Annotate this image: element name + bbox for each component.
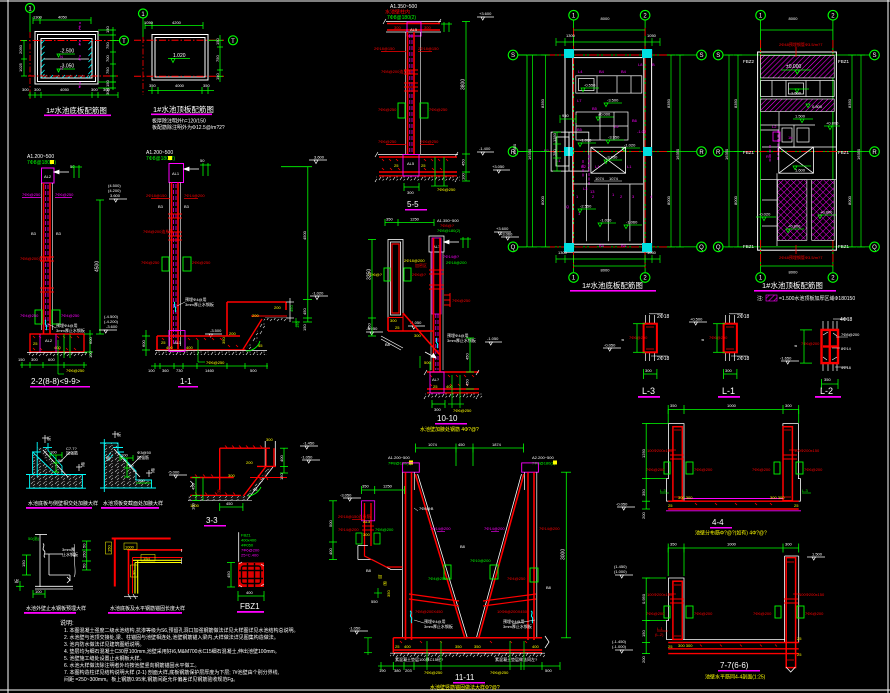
svg-text:1000: 1000 bbox=[125, 545, 135, 550]
svg-text:2Φ6@250: 2Φ6@250 bbox=[192, 260, 211, 265]
svg-text:B8: B8 bbox=[546, 585, 552, 590]
svg-text:-3.050: -3.050 bbox=[340, 493, 352, 498]
svg-text:300: 300 bbox=[266, 437, 273, 442]
svg-text:25: 25 bbox=[433, 384, 438, 389]
svg-text:25: 25 bbox=[794, 503, 799, 508]
svg-text:7Φ6@250: 7Φ6@250 bbox=[141, 260, 160, 265]
svg-text:L-3: L-3 bbox=[802, 488, 809, 493]
svg-text:400: 400 bbox=[166, 345, 173, 350]
svg-text:15d: 15d bbox=[143, 556, 150, 561]
svg-text:N: N bbox=[60, 66, 63, 71]
svg-text:5. 池壁施工缝处设置止水钢板大样。: 5. 池壁施工缝处设置止水钢板大样。 bbox=[64, 655, 145, 662]
svg-text:7Φ14@200: 7Φ14@200 bbox=[539, 526, 560, 531]
svg-text:150: 150 bbox=[295, 321, 300, 328]
svg-text:1-1: 1-1 bbox=[180, 377, 192, 386]
svg-text:1.500: 1.500 bbox=[795, 114, 806, 119]
svg-text:2Φ18@150: 2Φ18@150 bbox=[418, 46, 439, 51]
svg-text:R: R bbox=[716, 150, 721, 156]
svg-text:150: 150 bbox=[215, 73, 220, 80]
svg-text:B3: B3 bbox=[158, 204, 164, 209]
svg-text:700: 700 bbox=[105, 55, 110, 62]
svg-text:50: 50 bbox=[70, 164, 75, 169]
svg-text:壁: 壁 bbox=[81, 461, 85, 467]
svg-text:7Φ6@250: 7Φ6@250 bbox=[55, 192, 74, 197]
svg-text:板: 板 bbox=[13, 579, 19, 583]
svg-text:4500: 4500 bbox=[95, 261, 101, 272]
svg-text:L-1: L-1 bbox=[657, 626, 664, 631]
svg-text:(1.000): (1.000) bbox=[614, 569, 627, 574]
svg-text:450: 450 bbox=[461, 159, 466, 166]
svg-text:350: 350 bbox=[670, 542, 677, 547]
svg-text:100: 100 bbox=[35, 589, 42, 594]
svg-text:Q: Q bbox=[699, 245, 704, 251]
svg-text:7Φ8@200: 7Φ8@200 bbox=[841, 332, 860, 337]
svg-text:2Φ6@250: 2Φ6@250 bbox=[420, 139, 439, 144]
svg-text:+3.050: +3.050 bbox=[492, 164, 505, 169]
svg-text:750: 750 bbox=[552, 149, 557, 156]
svg-text:1250: 1250 bbox=[383, 484, 393, 489]
svg-text:7Φ6@250: 7Φ6@250 bbox=[378, 107, 397, 112]
svg-text:7-7(6-6): 7-7(6-6) bbox=[720, 661, 749, 670]
svg-text:7Φ6@250: 7Φ6@250 bbox=[490, 670, 509, 675]
svg-text:1050: 1050 bbox=[647, 250, 657, 255]
svg-text:7Φ8@180(2): 7Φ8@180(2) bbox=[387, 15, 416, 21]
svg-text:3.600: 3.600 bbox=[314, 155, 325, 160]
svg-text:8350: 8350 bbox=[540, 98, 545, 108]
svg-text:360: 360 bbox=[162, 368, 169, 373]
svg-text:壁: 壁 bbox=[106, 455, 110, 461]
svg-text:2Φ18@200: 2Φ18@200 bbox=[446, 260, 467, 265]
svg-text:T: T bbox=[231, 39, 235, 45]
svg-text:板配筋除注明外为Φ12.5@/m?2?: 板配筋除注明外为Φ12.5@/m?2? bbox=[152, 124, 225, 131]
svg-text:AL2: AL2 bbox=[44, 174, 52, 179]
svg-text:450: 450 bbox=[367, 323, 372, 330]
svg-text:8000: 8000 bbox=[733, 195, 738, 205]
svg-text:密: 密 bbox=[383, 580, 387, 586]
svg-text:A2.200~500: A2.200~500 bbox=[532, 455, 554, 460]
svg-text:1300: 1300 bbox=[558, 250, 568, 255]
svg-text:加: 加 bbox=[378, 573, 382, 579]
svg-text:+3.600: +3.600 bbox=[496, 226, 509, 231]
svg-text:L-1: L-1 bbox=[722, 386, 735, 396]
svg-text:450: 450 bbox=[226, 571, 231, 578]
svg-text:FBZ1: FBZ1 bbox=[743, 244, 754, 249]
svg-text:7Φ6@200: 7Φ6@200 bbox=[694, 611, 713, 616]
svg-text:45: 45 bbox=[258, 343, 263, 348]
svg-text:2Φ18@150连系筋: 2Φ18@150连系筋 bbox=[338, 513, 371, 519]
svg-text:7Φ6@200: 7Φ6@200 bbox=[629, 335, 648, 340]
svg-text:壁: 壁 bbox=[151, 467, 155, 473]
svg-text:600: 600 bbox=[88, 337, 93, 344]
svg-text:7Φ6@250: 7Φ6@250 bbox=[453, 408, 472, 413]
svg-text:45: 45 bbox=[253, 487, 258, 492]
svg-text:7Φ6@200: 7Φ6@200 bbox=[753, 611, 772, 616]
svg-text:400: 400 bbox=[328, 548, 333, 555]
svg-text:1874: 1874 bbox=[492, 442, 502, 447]
svg-text:3mm厚止水钢板: 3mm厚止水钢板 bbox=[185, 301, 214, 307]
svg-text:300: 300 bbox=[394, 25, 401, 30]
svg-text:200: 200 bbox=[246, 460, 253, 465]
svg-text:200: 200 bbox=[641, 656, 646, 663]
svg-text:200: 200 bbox=[229, 331, 236, 336]
svg-text:池壁水平筋同4-4剖面(1:25): 池壁水平筋同4-4剖面(1:25) bbox=[705, 674, 766, 681]
svg-text:300: 300 bbox=[22, 87, 29, 92]
svg-text:2Φ18: 2Φ18 bbox=[657, 314, 670, 320]
svg-text:300: 300 bbox=[785, 542, 792, 547]
svg-text:4Φ18: 4Φ18 bbox=[840, 317, 853, 323]
svg-text:11-11: 11-11 bbox=[455, 673, 475, 682]
svg-text:25: 25 bbox=[33, 341, 38, 346]
svg-text:4200: 4200 bbox=[172, 20, 182, 25]
svg-text:300: 300 bbox=[34, 87, 41, 92]
svg-text:300 300: 300 300 bbox=[678, 643, 693, 648]
svg-text:450: 450 bbox=[226, 501, 233, 506]
svg-text:1.020: 1.020 bbox=[173, 53, 186, 59]
svg-text:1074: 1074 bbox=[428, 442, 438, 447]
svg-text:B4: B4 bbox=[599, 69, 605, 74]
svg-text:FBZ2: FBZ2 bbox=[743, 59, 754, 64]
svg-text:B8: B8 bbox=[385, 342, 391, 347]
svg-text:吊: 吊 bbox=[217, 489, 221, 494]
svg-text:350: 350 bbox=[203, 83, 210, 88]
svg-text:300: 300 bbox=[725, 368, 732, 373]
svg-text:8000: 8000 bbox=[601, 268, 611, 273]
svg-text:3. 池内防水做法详见建筑图纸说明。: 3. 池内防水做法详见建筑图纸说明。 bbox=[64, 641, 145, 648]
svg-text:100: 100 bbox=[88, 351, 93, 358]
svg-text:350: 350 bbox=[670, 403, 677, 408]
svg-text:(L-2): (L-2) bbox=[655, 632, 664, 637]
svg-text:25: 25 bbox=[395, 644, 400, 649]
svg-text:7Φ14@200: 7Φ14@200 bbox=[484, 526, 505, 531]
svg-text:7Φ6@200: 7Φ6@200 bbox=[709, 335, 728, 340]
svg-text:8000: 8000 bbox=[540, 195, 545, 205]
svg-text:350: 350 bbox=[362, 484, 369, 489]
svg-text:50: 50 bbox=[200, 158, 205, 163]
svg-text:L8: L8 bbox=[638, 62, 643, 67]
svg-text:500: 500 bbox=[328, 520, 333, 527]
svg-text:Q: Q bbox=[511, 245, 516, 251]
svg-text:7Φ8@180(2): 7Φ8@180(2) bbox=[437, 228, 461, 233]
svg-text:7Φ14@200: 7Φ14@200 bbox=[430, 526, 451, 531]
svg-text:450: 450 bbox=[465, 379, 470, 386]
svg-text:7Φ4@250: 7Φ4@250 bbox=[20, 313, 39, 318]
svg-text:7Φ6@250: 7Φ6@250 bbox=[206, 360, 225, 365]
svg-text:1#水池底板配筋图: 1#水池底板配筋图 bbox=[46, 105, 107, 115]
svg-text:25: 25 bbox=[394, 163, 399, 168]
svg-text:-3.600: -3.600 bbox=[106, 324, 118, 329]
svg-text:7Φ14@200: 7Φ14@200 bbox=[338, 527, 359, 532]
svg-text:+0.800: +0.800 bbox=[826, 121, 839, 126]
svg-text:380: 380 bbox=[394, 668, 401, 673]
svg-text:B5: B5 bbox=[592, 106, 598, 111]
svg-text:加密区: 加密区 bbox=[415, 262, 427, 268]
svg-text:1#水池顶板配筋图: 1#水池顶板配筋图 bbox=[762, 280, 823, 290]
svg-text:B4: B4 bbox=[621, 69, 627, 74]
svg-text:2Φ18: 2Φ18 bbox=[737, 356, 750, 362]
svg-text:7Φ8@200连系筋: 7Φ8@200连系筋 bbox=[20, 255, 50, 261]
svg-text:7Φ4@250: 7Φ4@250 bbox=[61, 313, 80, 318]
svg-text:AL1: AL1 bbox=[172, 171, 180, 176]
svg-text:FBZ1: FBZ1 bbox=[743, 150, 754, 155]
svg-text:FBZ1: FBZ1 bbox=[838, 150, 849, 155]
svg-text:-1.650: -1.650 bbox=[780, 356, 792, 361]
svg-text:300: 300 bbox=[390, 318, 397, 323]
svg-text:8000: 8000 bbox=[601, 16, 611, 21]
svg-text:300 300: 300 300 bbox=[770, 495, 785, 500]
svg-text:50: 50 bbox=[58, 458, 63, 463]
svg-text:水池底板与侧壁相交处加腋大样: 水池底板与侧壁相交处加腋大样 bbox=[28, 500, 98, 507]
svg-text:S: S bbox=[699, 53, 703, 59]
svg-text:AL5: AL5 bbox=[407, 161, 415, 166]
svg-text:150: 150 bbox=[21, 560, 26, 567]
svg-text:2. 水池壁与池顶交接处,梁、柱锚固与池壁相连处,池壁钢筋锚: 2. 水池壁与池顶交接处,梁、柱锚固与池壁相连处,池壁钢筋锚入梁内,大样做法详见… bbox=[64, 634, 279, 641]
svg-text:3800: 3800 bbox=[461, 79, 467, 90]
svg-text:-3.500: -3.500 bbox=[607, 98, 619, 103]
svg-text:2-2(8-8)<9-9>: 2-2(8-8)<9-9> bbox=[31, 377, 81, 386]
svg-text:4. 垫层均为细石混凝土C30厚100mm,池壁采用好Ⅰ6,: 4. 垫层均为细石混凝土C30厚100mm,池壁采用好Ⅰ6,M&M700水C15… bbox=[64, 648, 280, 655]
svg-text:7Φ8@200X450: 7Φ8@200X450 bbox=[415, 609, 443, 614]
svg-text:说明:: 说明: bbox=[60, 619, 74, 627]
svg-text:FBZ1: FBZ1 bbox=[838, 244, 849, 249]
svg-text:5-5: 5-5 bbox=[407, 200, 419, 209]
svg-text:-0.550: -0.550 bbox=[584, 83, 596, 88]
svg-text:7Φ8@200连系筋: 7Φ8@200连系筋 bbox=[143, 228, 173, 234]
svg-text:-1.02: -1.02 bbox=[637, 129, 647, 134]
svg-text:+0.500: +0.500 bbox=[690, 317, 703, 322]
svg-text:16350: 16350 bbox=[675, 148, 680, 160]
svg-text:B5: B5 bbox=[577, 127, 583, 132]
svg-text:池壁分布筋Φ?@?(如有) 4Φ?@?: 池壁分布筋Φ?@?(如有) 4Φ?@? bbox=[695, 530, 767, 537]
svg-text:R1: R1 bbox=[544, 148, 550, 153]
svg-text:=1.500水池顶板加厚区域Φ180150: =1.500水池顶板加厚区域Φ180150 bbox=[779, 295, 855, 302]
svg-text:10Φ8@200X450: 10Φ8@200X450 bbox=[497, 609, 528, 614]
svg-text:7Φ6@200: 7Φ6@200 bbox=[752, 467, 771, 472]
svg-text:-5.000: -5.000 bbox=[168, 470, 180, 475]
svg-text:1#水池底板配筋图: 1#水池底板配筋图 bbox=[582, 280, 643, 290]
svg-text:300: 300 bbox=[645, 368, 652, 373]
svg-text:350: 350 bbox=[455, 644, 462, 649]
svg-text:3mm厚止水钢板: 3mm厚止水钢板 bbox=[56, 327, 85, 333]
svg-text:FBZ1: FBZ1 bbox=[838, 59, 849, 64]
svg-text:-2.550: -2.550 bbox=[580, 204, 592, 209]
svg-text:-3.950: -3.950 bbox=[606, 155, 618, 160]
svg-text:3-3: 3-3 bbox=[206, 516, 218, 525]
svg-text:-1.060: -1.060 bbox=[626, 220, 638, 225]
svg-text:R1: R1 bbox=[766, 154, 772, 159]
svg-text:2050: 2050 bbox=[18, 44, 23, 54]
svg-text:400: 400 bbox=[186, 345, 193, 350]
svg-text:1b: 1b bbox=[788, 135, 793, 140]
svg-text:1.500: 1.500 bbox=[791, 91, 802, 96]
svg-text:300: 300 bbox=[434, 407, 441, 412]
svg-text:-1.400: -1.400 bbox=[479, 146, 491, 151]
svg-text:0.800: 0.800 bbox=[812, 104, 823, 109]
svg-text:16350: 16350 bbox=[527, 148, 532, 160]
svg-text:+3.600: +3.600 bbox=[479, 11, 492, 16]
svg-text:25: 25 bbox=[797, 652, 802, 657]
svg-text:T: T bbox=[122, 39, 126, 45]
svg-text:1250: 1250 bbox=[552, 132, 557, 142]
svg-text:+0.800: +0.800 bbox=[788, 224, 801, 229]
svg-text:-3.500: -3.500 bbox=[210, 328, 222, 333]
svg-text:A1.200~500: A1.200~500 bbox=[388, 455, 410, 460]
svg-text:2Φ18: 2Φ18 bbox=[737, 314, 750, 320]
svg-text:7Φ8@200连系筋: 7Φ8@200连系筋 bbox=[381, 68, 411, 74]
svg-text:7Φ4@250: 7Φ4@250 bbox=[507, 576, 526, 581]
svg-text:水池顶板变截面处加腋大样: 水池顶板变截面处加腋大样 bbox=[103, 500, 163, 507]
svg-text:1050: 1050 bbox=[144, 20, 154, 25]
svg-text:50: 50 bbox=[82, 543, 87, 548]
svg-text:-3.950: -3.950 bbox=[608, 135, 620, 140]
svg-text:3.600: 3.600 bbox=[110, 193, 121, 198]
svg-text:B3: B3 bbox=[31, 231, 37, 236]
svg-text:30: 30 bbox=[132, 570, 137, 575]
svg-text:450: 450 bbox=[289, 305, 294, 312]
svg-text:-0.050: -0.050 bbox=[616, 502, 628, 507]
svg-text:B4: B4 bbox=[599, 243, 605, 248]
svg-text:350: 350 bbox=[824, 377, 831, 382]
svg-text:150: 150 bbox=[279, 473, 284, 480]
svg-text:B3: B3 bbox=[56, 231, 62, 236]
svg-text:2Φ48预埋钢管Φ3.5/m?7: 2Φ48预埋钢管Φ3.5/m?7 bbox=[779, 254, 823, 260]
svg-text:素混凝土垫层做法同左?: 素混凝土垫层做法同左? bbox=[495, 656, 538, 662]
svg-text:100Φ200x150: 100Φ200x150 bbox=[794, 448, 820, 453]
svg-text:300 300: 300 300 bbox=[678, 495, 693, 500]
svg-text:300: 300 bbox=[228, 473, 235, 478]
svg-text:450: 450 bbox=[302, 308, 307, 315]
svg-text:8000: 8000 bbox=[789, 270, 799, 275]
svg-text:150: 150 bbox=[105, 26, 110, 33]
svg-text:L-3: L-3 bbox=[660, 488, 667, 493]
svg-text:1460: 1460 bbox=[205, 368, 215, 373]
svg-text:FBZ1: FBZ1 bbox=[240, 602, 260, 611]
svg-text:25: 25 bbox=[668, 644, 673, 649]
svg-text:L7: L7 bbox=[577, 98, 582, 103]
svg-text:-0.020: -0.020 bbox=[759, 212, 771, 217]
svg-text:16350: 16350 bbox=[724, 148, 729, 160]
svg-text:350: 350 bbox=[149, 83, 156, 88]
svg-text:10-10: 10-10 bbox=[437, 414, 458, 423]
svg-text:L1: L1 bbox=[595, 164, 600, 169]
svg-text:4500: 4500 bbox=[302, 230, 307, 240]
svg-text:+0.800: +0.800 bbox=[820, 210, 833, 215]
svg-text:1. 本图混凝土强度二级水池结构,抗渗等级为S6,预留孔洞口: 1. 本图混凝土强度二级水池结构,抗渗等级为S6,预留孔洞口加强钢筋做法详见大样… bbox=[64, 627, 299, 634]
svg-text:25: 25 bbox=[797, 636, 802, 641]
svg-text:300: 300 bbox=[785, 403, 792, 408]
svg-text:AL5: AL5 bbox=[410, 27, 418, 32]
svg-text:500: 500 bbox=[545, 668, 552, 673]
svg-text:素混凝土垫层100厚C15砼?: 素混凝土垫层100厚C15砼? bbox=[395, 656, 444, 662]
svg-text:3mm厚止水钢板: 3mm厚止水钢板 bbox=[424, 623, 453, 629]
svg-text:Q: Q bbox=[716, 245, 721, 251]
svg-text:1#水池顶板配筋图: 1#水池顶板配筋图 bbox=[153, 104, 214, 114]
svg-text:7Φ8@B: 7Φ8@B bbox=[419, 506, 434, 511]
svg-text:8000: 8000 bbox=[847, 195, 852, 205]
svg-text:AL?: AL? bbox=[432, 377, 440, 382]
svg-text:7Φ14@?: 7Φ14@? bbox=[443, 254, 460, 259]
svg-text:4000: 4000 bbox=[175, 83, 185, 88]
svg-text:间距 =250~300mm。板上钢筋0.95米,钢筋间距允许: 间距 =250~300mm。板上钢筋0.95米,钢筋间距允许偏差详见钢筋验收规范… bbox=[64, 676, 238, 683]
svg-text:-1.450: -1.450 bbox=[303, 441, 315, 446]
svg-text:-1.020: -1.020 bbox=[600, 218, 612, 223]
svg-text:7Φ8@200: 7Φ8@200 bbox=[375, 527, 394, 532]
svg-text:加强筋: 加强筋 bbox=[137, 454, 149, 460]
svg-text:150: 150 bbox=[105, 80, 110, 87]
svg-text:350: 350 bbox=[386, 590, 391, 597]
svg-text:100: 100 bbox=[191, 503, 196, 510]
svg-text:300: 300 bbox=[424, 25, 431, 30]
svg-text:100: 100 bbox=[121, 453, 128, 458]
svg-text:B6: B6 bbox=[632, 118, 638, 123]
svg-text:4Φ18: 4Φ18 bbox=[841, 365, 852, 370]
svg-text:8000: 8000 bbox=[789, 16, 799, 21]
svg-text:4050: 4050 bbox=[60, 87, 70, 92]
svg-text:7Φ6@250: 7Φ6@250 bbox=[66, 368, 85, 373]
svg-text:1050: 1050 bbox=[647, 33, 657, 38]
svg-text:600: 600 bbox=[141, 340, 146, 347]
svg-text:R: R bbox=[699, 150, 704, 156]
svg-text:±0.000: ±0.000 bbox=[786, 64, 801, 70]
svg-text:止水钢板: 止水钢板 bbox=[62, 551, 78, 557]
svg-text:200: 200 bbox=[641, 512, 646, 519]
svg-text:S: S bbox=[872, 53, 876, 59]
svg-text:25: 25 bbox=[421, 163, 426, 168]
svg-text:300: 300 bbox=[407, 190, 414, 195]
svg-text:2Φ18: 2Φ18 bbox=[657, 356, 670, 362]
svg-text:B4: B4 bbox=[621, 243, 627, 248]
svg-text:350: 350 bbox=[386, 217, 393, 222]
svg-text:B2: B2 bbox=[581, 164, 587, 169]
svg-text:750: 750 bbox=[105, 67, 110, 74]
svg-text:100: 100 bbox=[50, 450, 57, 455]
svg-text:2Φ18@150: 2Φ18@150 bbox=[146, 193, 167, 198]
svg-text:8Φ14: 8Φ14 bbox=[841, 346, 852, 351]
svg-text:150: 150 bbox=[215, 38, 220, 45]
svg-text:150: 150 bbox=[82, 551, 87, 558]
svg-text:25: 25 bbox=[668, 503, 673, 508]
svg-text:450: 450 bbox=[458, 442, 465, 447]
svg-text:7Φ6@200: 7Φ6@200 bbox=[646, 611, 665, 616]
svg-text:300: 300 bbox=[31, 357, 38, 362]
svg-text:AL2: AL2 bbox=[45, 338, 53, 343]
svg-text:350: 350 bbox=[474, 644, 481, 649]
svg-text:300: 300 bbox=[103, 87, 110, 92]
svg-text:S: S bbox=[511, 53, 515, 59]
svg-text:L3: L3 bbox=[583, 186, 588, 191]
svg-text:150: 150 bbox=[107, 545, 112, 552]
svg-text:8350: 8350 bbox=[847, 98, 852, 108]
svg-text:L-2: L-2 bbox=[820, 386, 833, 396]
svg-text:25=C.400: 25=C.400 bbox=[241, 553, 259, 558]
svg-text:-1.050: -1.050 bbox=[349, 626, 361, 631]
svg-text:L1: L1 bbox=[627, 164, 632, 169]
svg-text:1.500: 1.500 bbox=[812, 552, 823, 557]
svg-text:1074: 1074 bbox=[595, 176, 605, 181]
svg-text:Q: Q bbox=[566, 204, 569, 209]
svg-text:7Φ6@200: 7Φ6@200 bbox=[804, 467, 823, 472]
svg-text:100Φ200x150: 100Φ200x150 bbox=[647, 448, 673, 453]
svg-text:8350: 8350 bbox=[733, 98, 738, 108]
svg-text:50(溢): 50(溢) bbox=[28, 535, 40, 541]
svg-text:(-1.000): (-1.000) bbox=[612, 644, 627, 649]
svg-text:100: 100 bbox=[461, 173, 466, 180]
svg-text:3mm厚止水钢板: 3mm厚止水钢板 bbox=[503, 623, 532, 629]
svg-text:190: 190 bbox=[379, 668, 386, 673]
svg-text:2Φ18@150: 2Φ18@150 bbox=[374, 46, 395, 51]
svg-text:550: 550 bbox=[371, 599, 378, 604]
svg-text:+3.060: +3.060 bbox=[500, 232, 513, 237]
svg-text:500: 500 bbox=[250, 368, 257, 373]
